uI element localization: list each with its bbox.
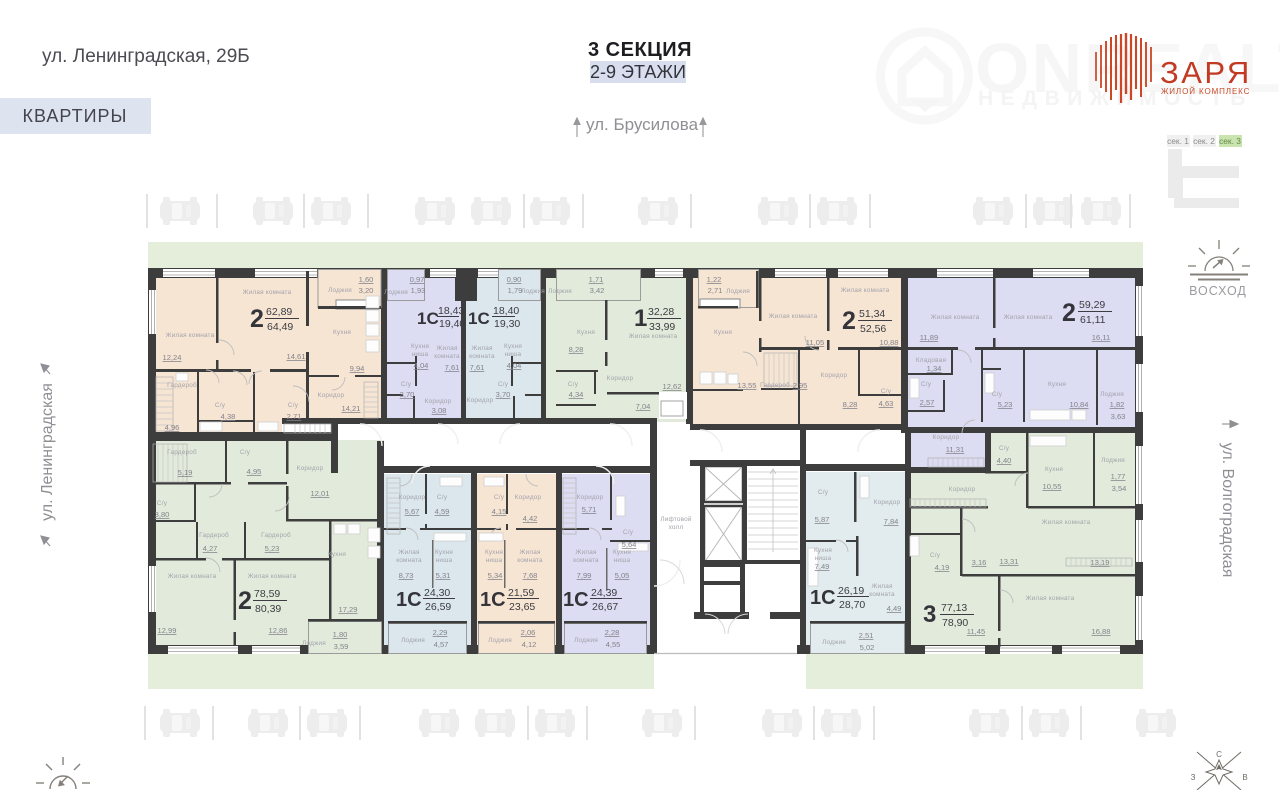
svg-text:ниша: ниша xyxy=(815,555,832,562)
svg-text:5,64: 5,64 xyxy=(622,540,637,549)
svg-text:11,89: 11,89 xyxy=(920,333,938,342)
svg-text:Кухня: Кухня xyxy=(814,547,832,554)
svg-text:З: З xyxy=(1191,773,1196,782)
svg-text:С/у: С/у xyxy=(157,500,168,507)
svg-text:5,19: 5,19 xyxy=(178,468,193,477)
svg-text:Жилая комната: Жилая комната xyxy=(841,287,890,294)
svg-text:ниша: ниша xyxy=(614,557,631,564)
svg-text:2,71: 2,71 xyxy=(708,286,723,295)
svg-text:12,86: 12,86 xyxy=(268,626,287,635)
svg-text:Кухня: Кухня xyxy=(1048,381,1066,388)
svg-text:Лоджия: Лоджия xyxy=(1101,457,1125,464)
svg-text:В: В xyxy=(1242,773,1247,782)
svg-text:5,31: 5,31 xyxy=(436,571,451,580)
svg-text:11,45: 11,45 xyxy=(967,627,985,636)
svg-text:23,65: 23,65 xyxy=(509,601,535,613)
svg-text:19,40: 19,40 xyxy=(439,318,465,330)
svg-text:4,55: 4,55 xyxy=(606,640,621,649)
svg-text:2,51: 2,51 xyxy=(859,631,874,640)
svg-text:7,61: 7,61 xyxy=(470,363,485,372)
svg-text:Жилая комната: Жилая комната xyxy=(168,573,217,580)
svg-text:3,70: 3,70 xyxy=(496,390,511,399)
svg-text:Жилая: Жилая xyxy=(575,549,597,556)
svg-text:С/у: С/у xyxy=(401,381,412,388)
svg-text:С/у: С/у xyxy=(623,529,634,536)
svg-text:3,63: 3,63 xyxy=(1111,412,1126,421)
svg-text:1С: 1С xyxy=(563,589,589,611)
svg-text:26,19: 26,19 xyxy=(838,585,864,597)
svg-text:3,59: 3,59 xyxy=(334,642,349,651)
svg-text:ниша: ниша xyxy=(412,351,429,358)
svg-text:4,40: 4,40 xyxy=(997,456,1012,465)
svg-text:С/у: С/у xyxy=(999,445,1010,452)
svg-text:8,73: 8,73 xyxy=(399,571,414,580)
svg-text:С/у: С/у xyxy=(215,402,226,409)
svg-text:18,43: 18,43 xyxy=(438,305,464,317)
svg-text:ул. Ленинградская, 29Б: ул. Ленинградская, 29Б xyxy=(42,46,250,67)
svg-text:Жилая комната: Жилая комната xyxy=(248,573,297,580)
svg-text:32,28: 32,28 xyxy=(648,306,674,318)
svg-text:Коридор: Коридор xyxy=(874,499,901,506)
svg-text:1: 1 xyxy=(634,305,647,332)
svg-text:52,56: 52,56 xyxy=(860,323,886,335)
svg-text:Лоджия: Лоджия xyxy=(401,637,425,644)
svg-text:61,11: 61,11 xyxy=(1080,314,1106,326)
svg-text:7,61: 7,61 xyxy=(445,363,460,372)
svg-text:5,05: 5,05 xyxy=(615,571,630,580)
svg-text:2,06: 2,06 xyxy=(521,628,536,637)
svg-text:ул. Брусилова: ул. Брусилова xyxy=(586,115,699,134)
svg-text:сек. 1: сек. 1 xyxy=(1167,136,1189,146)
svg-text:3,42: 3,42 xyxy=(590,286,605,295)
svg-text:1,71: 1,71 xyxy=(589,275,604,284)
svg-text:Лоджия: Лоджия xyxy=(302,640,326,647)
svg-text:1,34: 1,34 xyxy=(927,364,942,373)
svg-text:4,27: 4,27 xyxy=(203,544,218,553)
svg-text:1С: 1С xyxy=(480,589,506,611)
svg-text:12,99: 12,99 xyxy=(157,626,176,635)
svg-text:1,80: 1,80 xyxy=(333,630,348,639)
svg-text:1,79: 1,79 xyxy=(508,286,523,295)
svg-text:С/у: С/у xyxy=(921,381,932,388)
svg-text:4,96: 4,96 xyxy=(165,423,180,432)
svg-text:Жилая комната: Жилая комната xyxy=(629,333,678,340)
svg-text:1,60: 1,60 xyxy=(359,275,374,284)
svg-text:Лоджия: Лоджия xyxy=(488,637,512,644)
svg-text:ниша: ниша xyxy=(486,557,503,564)
svg-text:21,59: 21,59 xyxy=(508,587,534,599)
svg-text:80,39: 80,39 xyxy=(255,603,281,615)
svg-text:комната: комната xyxy=(573,557,599,564)
svg-text:7,68: 7,68 xyxy=(523,571,538,580)
svg-text:7,04: 7,04 xyxy=(636,402,651,411)
svg-text:Жилая: Жилая xyxy=(436,345,458,352)
svg-text:16,88: 16,88 xyxy=(1091,627,1110,636)
svg-text:24,30: 24,30 xyxy=(424,587,450,599)
svg-text:Кухня: Кухня xyxy=(714,329,732,336)
svg-text:Гардероб: Гардероб xyxy=(199,531,229,539)
svg-text:1,82: 1,82 xyxy=(1110,400,1125,409)
svg-text:8,28: 8,28 xyxy=(843,400,858,409)
svg-text:Кухня: Кухня xyxy=(613,549,631,556)
svg-text:1С: 1С xyxy=(396,589,422,611)
svg-text:комната: комната xyxy=(434,353,460,360)
svg-text:Жилая: Жилая xyxy=(471,345,493,352)
svg-text:Жилая комната: Жилая комната xyxy=(1026,595,1075,602)
svg-text:Коридор: Коридор xyxy=(399,494,426,501)
svg-text:сек. 3: сек. 3 xyxy=(1219,136,1241,146)
svg-text:Жилая: Жилая xyxy=(519,549,541,556)
svg-text:4,15: 4,15 xyxy=(492,507,507,516)
svg-text:Лоджия: Лоджия xyxy=(574,637,598,644)
svg-text:Коридор: Коридор xyxy=(949,486,976,493)
svg-text:59,29: 59,29 xyxy=(1079,299,1105,311)
svg-text:7,84: 7,84 xyxy=(884,517,899,526)
svg-text:10,88: 10,88 xyxy=(879,338,898,347)
svg-text:Лоджия: Лоджия xyxy=(822,639,846,646)
svg-text:0,90: 0,90 xyxy=(507,275,522,284)
svg-text:Кухня: Кухня xyxy=(328,551,346,558)
svg-text:2: 2 xyxy=(250,305,264,333)
svg-text:5,23: 5,23 xyxy=(265,544,280,553)
svg-text:С/у: С/у xyxy=(568,381,579,388)
svg-text:ЗАРЯ: ЗАРЯ xyxy=(1160,55,1252,90)
svg-text:13,55: 13,55 xyxy=(737,381,756,390)
svg-text:1,22: 1,22 xyxy=(707,275,722,284)
svg-text:ул. Волгоградская: ул. Волгоградская xyxy=(1219,443,1236,578)
svg-text:Кухня: Кухня xyxy=(485,549,503,556)
svg-text:8,28: 8,28 xyxy=(569,345,584,354)
svg-text:10,55: 10,55 xyxy=(1042,482,1061,491)
svg-text:4,04: 4,04 xyxy=(414,361,429,370)
svg-text:Кухня: Кухня xyxy=(1045,466,1063,473)
svg-text:Жилая комната: Жилая комната xyxy=(1004,314,1053,321)
svg-text:10,84: 10,84 xyxy=(1069,400,1088,409)
svg-text:Коридор: Коридор xyxy=(607,375,634,382)
svg-text:1,93: 1,93 xyxy=(411,286,426,295)
svg-text:5,67: 5,67 xyxy=(405,507,420,516)
svg-text:5,87: 5,87 xyxy=(815,515,830,524)
svg-text:Лоджия: Лоджия xyxy=(328,287,352,294)
svg-text:Лифтовой: Лифтовой xyxy=(660,515,692,523)
svg-text:С/у: С/у xyxy=(881,388,892,395)
svg-text:С: С xyxy=(1216,750,1222,759)
svg-text:19,30: 19,30 xyxy=(494,318,520,330)
svg-text:ВОСХОД: ВОСХОД xyxy=(1189,284,1247,298)
svg-text:3,16: 3,16 xyxy=(972,558,987,567)
svg-text:2,71: 2,71 xyxy=(287,412,302,421)
svg-text:1С: 1С xyxy=(810,587,836,609)
svg-text:4,34: 4,34 xyxy=(569,390,584,399)
svg-text:Коридор: Коридор xyxy=(318,392,345,399)
svg-text:4,12: 4,12 xyxy=(522,640,537,649)
svg-text:3: 3 xyxy=(923,601,936,628)
svg-text:2: 2 xyxy=(238,587,252,615)
svg-text:Лоджия: Лоджия xyxy=(1100,391,1124,398)
svg-text:Кухня: Кухня xyxy=(333,329,351,336)
svg-text:холл: холл xyxy=(669,524,684,531)
svg-text:78,59: 78,59 xyxy=(254,588,280,600)
svg-text:Кладовая: Кладовая xyxy=(916,357,947,364)
svg-text:С/у: С/у xyxy=(992,391,1003,398)
svg-text:2,95: 2,95 xyxy=(793,381,808,390)
svg-text:Жилая: Жилая xyxy=(398,549,420,556)
svg-text:9,94: 9,94 xyxy=(350,364,365,373)
svg-text:26,59: 26,59 xyxy=(425,601,451,613)
svg-text:1С: 1С xyxy=(417,309,439,328)
svg-text:4,95: 4,95 xyxy=(247,467,262,476)
svg-text:5,23: 5,23 xyxy=(998,400,1013,409)
svg-text:4,19: 4,19 xyxy=(935,563,950,572)
svg-text:комната: комната xyxy=(396,557,422,564)
svg-text:Коридор: Коридор xyxy=(577,494,604,501)
svg-text:16,11: 16,11 xyxy=(1092,333,1110,342)
svg-text:33,99: 33,99 xyxy=(649,321,675,333)
svg-text:78,90: 78,90 xyxy=(942,617,968,629)
svg-text:Кухня: Кухня xyxy=(411,343,429,350)
svg-text:4,49: 4,49 xyxy=(887,604,902,613)
svg-text:7,99: 7,99 xyxy=(577,571,592,580)
svg-text:Кухня: Кухня xyxy=(435,549,453,556)
svg-text:13,31: 13,31 xyxy=(999,557,1018,566)
svg-text:5,02: 5,02 xyxy=(860,643,875,652)
svg-text:С/у: С/у xyxy=(818,489,829,496)
svg-text:Коридор: Коридор xyxy=(467,397,494,404)
svg-text:62,89: 62,89 xyxy=(266,306,292,318)
svg-text:С/у: С/у xyxy=(498,381,509,388)
svg-text:сек. 2: сек. 2 xyxy=(1193,136,1215,146)
svg-text:С/у: С/у xyxy=(437,494,448,501)
svg-text:5,34: 5,34 xyxy=(488,571,503,580)
svg-text:3,08: 3,08 xyxy=(432,406,447,415)
svg-text:18,40: 18,40 xyxy=(493,305,519,317)
svg-text:Коридор: Коридор xyxy=(297,465,324,472)
svg-text:4,63: 4,63 xyxy=(879,399,894,408)
svg-text:Лоджия: Лоджия xyxy=(548,288,572,295)
svg-text:2: 2 xyxy=(842,307,856,335)
svg-text:2,29: 2,29 xyxy=(433,628,448,637)
svg-text:Коридор: Коридор xyxy=(933,434,960,441)
svg-text:Жилая комната: Жилая комната xyxy=(166,332,215,339)
svg-text:12,01: 12,01 xyxy=(310,489,329,498)
svg-text:3 СЕКЦИЯ: 3 СЕКЦИЯ xyxy=(588,39,692,61)
svg-text:3,70: 3,70 xyxy=(400,390,415,399)
svg-text:Лоджия: Лоджия xyxy=(384,289,408,296)
svg-text:ниша: ниша xyxy=(436,557,453,564)
svg-text:14,61: 14,61 xyxy=(286,352,305,361)
svg-text:Гардероб: Гардероб xyxy=(167,381,197,389)
svg-text:ниша: ниша xyxy=(505,351,522,358)
svg-text:КВАРТИРЫ: КВАРТИРЫ xyxy=(23,106,128,126)
svg-text:Жилая: Жилая xyxy=(871,583,893,590)
svg-text:0,97: 0,97 xyxy=(410,275,425,284)
svg-text:Коридор: Коридор xyxy=(425,398,452,405)
svg-text:Лоджия: Лоджия xyxy=(521,288,545,295)
svg-text:Коридор: Коридор xyxy=(515,494,542,501)
svg-text:ул. Ленинградская: ул. Ленинградская xyxy=(39,383,56,521)
svg-text:Гардероб: Гардероб xyxy=(760,381,790,389)
svg-text:3,20: 3,20 xyxy=(359,286,374,295)
svg-text:1,77: 1,77 xyxy=(1111,472,1126,481)
svg-text:Жилая комната: Жилая комната xyxy=(931,314,980,321)
svg-text:26,67: 26,67 xyxy=(592,601,618,613)
svg-text:4,04: 4,04 xyxy=(507,361,522,370)
svg-text:4,38: 4,38 xyxy=(221,412,236,421)
svg-text:комната: комната xyxy=(869,591,895,598)
svg-text:14,21: 14,21 xyxy=(341,404,360,413)
svg-text:51,34: 51,34 xyxy=(859,308,885,320)
svg-text:С/у: С/у xyxy=(930,552,941,559)
svg-text:Гардероб: Гардероб xyxy=(261,531,291,539)
svg-text:24,39: 24,39 xyxy=(591,587,617,599)
svg-text:12,24: 12,24 xyxy=(162,353,181,362)
svg-text:С/у: С/у xyxy=(240,449,251,456)
svg-text:4,42: 4,42 xyxy=(523,514,538,523)
svg-text:Жилая комната: Жилая комната xyxy=(1042,519,1091,526)
svg-text:2-9 ЭТАЖИ: 2-9 ЭТАЖИ xyxy=(590,62,686,82)
svg-text:11,31: 11,31 xyxy=(946,445,964,454)
svg-text:Кухня: Кухня xyxy=(504,343,522,350)
svg-text:Лоджия: Лоджия xyxy=(726,288,750,295)
svg-text:3,54: 3,54 xyxy=(1112,484,1127,493)
svg-text:4,59: 4,59 xyxy=(435,507,450,516)
svg-text:С/у: С/у xyxy=(494,494,505,501)
svg-text:2,57: 2,57 xyxy=(920,398,935,407)
svg-text:2,28: 2,28 xyxy=(605,628,620,637)
svg-text:11,05: 11,05 xyxy=(806,338,824,347)
svg-text:ЖИЛОЙ КОМПЛЕКС: ЖИЛОЙ КОМПЛЕКС xyxy=(1161,87,1250,96)
svg-text:Гардероб: Гардероб xyxy=(167,448,197,456)
svg-text:4,57: 4,57 xyxy=(434,640,449,649)
svg-text:5,71: 5,71 xyxy=(582,505,597,514)
svg-text:77,13: 77,13 xyxy=(941,602,967,614)
svg-text:Жилая комната: Жилая комната xyxy=(769,313,818,320)
svg-text:С/у: С/у xyxy=(288,402,299,409)
svg-text:1С: 1С xyxy=(468,309,490,328)
svg-text:Коридор: Коридор xyxy=(821,372,848,379)
svg-text:Жилая комната: Жилая комната xyxy=(243,289,292,296)
svg-text:28,70: 28,70 xyxy=(839,599,865,611)
svg-text:2: 2 xyxy=(1062,299,1076,327)
svg-text:64,49: 64,49 xyxy=(267,321,293,333)
svg-text:комната: комната xyxy=(469,353,495,360)
svg-text:7,49: 7,49 xyxy=(815,562,830,571)
svg-text:комната: комната xyxy=(517,557,543,564)
svg-text:12,62: 12,62 xyxy=(662,382,681,391)
svg-text:17,29: 17,29 xyxy=(338,605,357,614)
svg-text:3,80: 3,80 xyxy=(155,510,170,519)
svg-text:13,19: 13,19 xyxy=(1090,558,1109,567)
svg-text:Кухня: Кухня xyxy=(577,329,595,336)
